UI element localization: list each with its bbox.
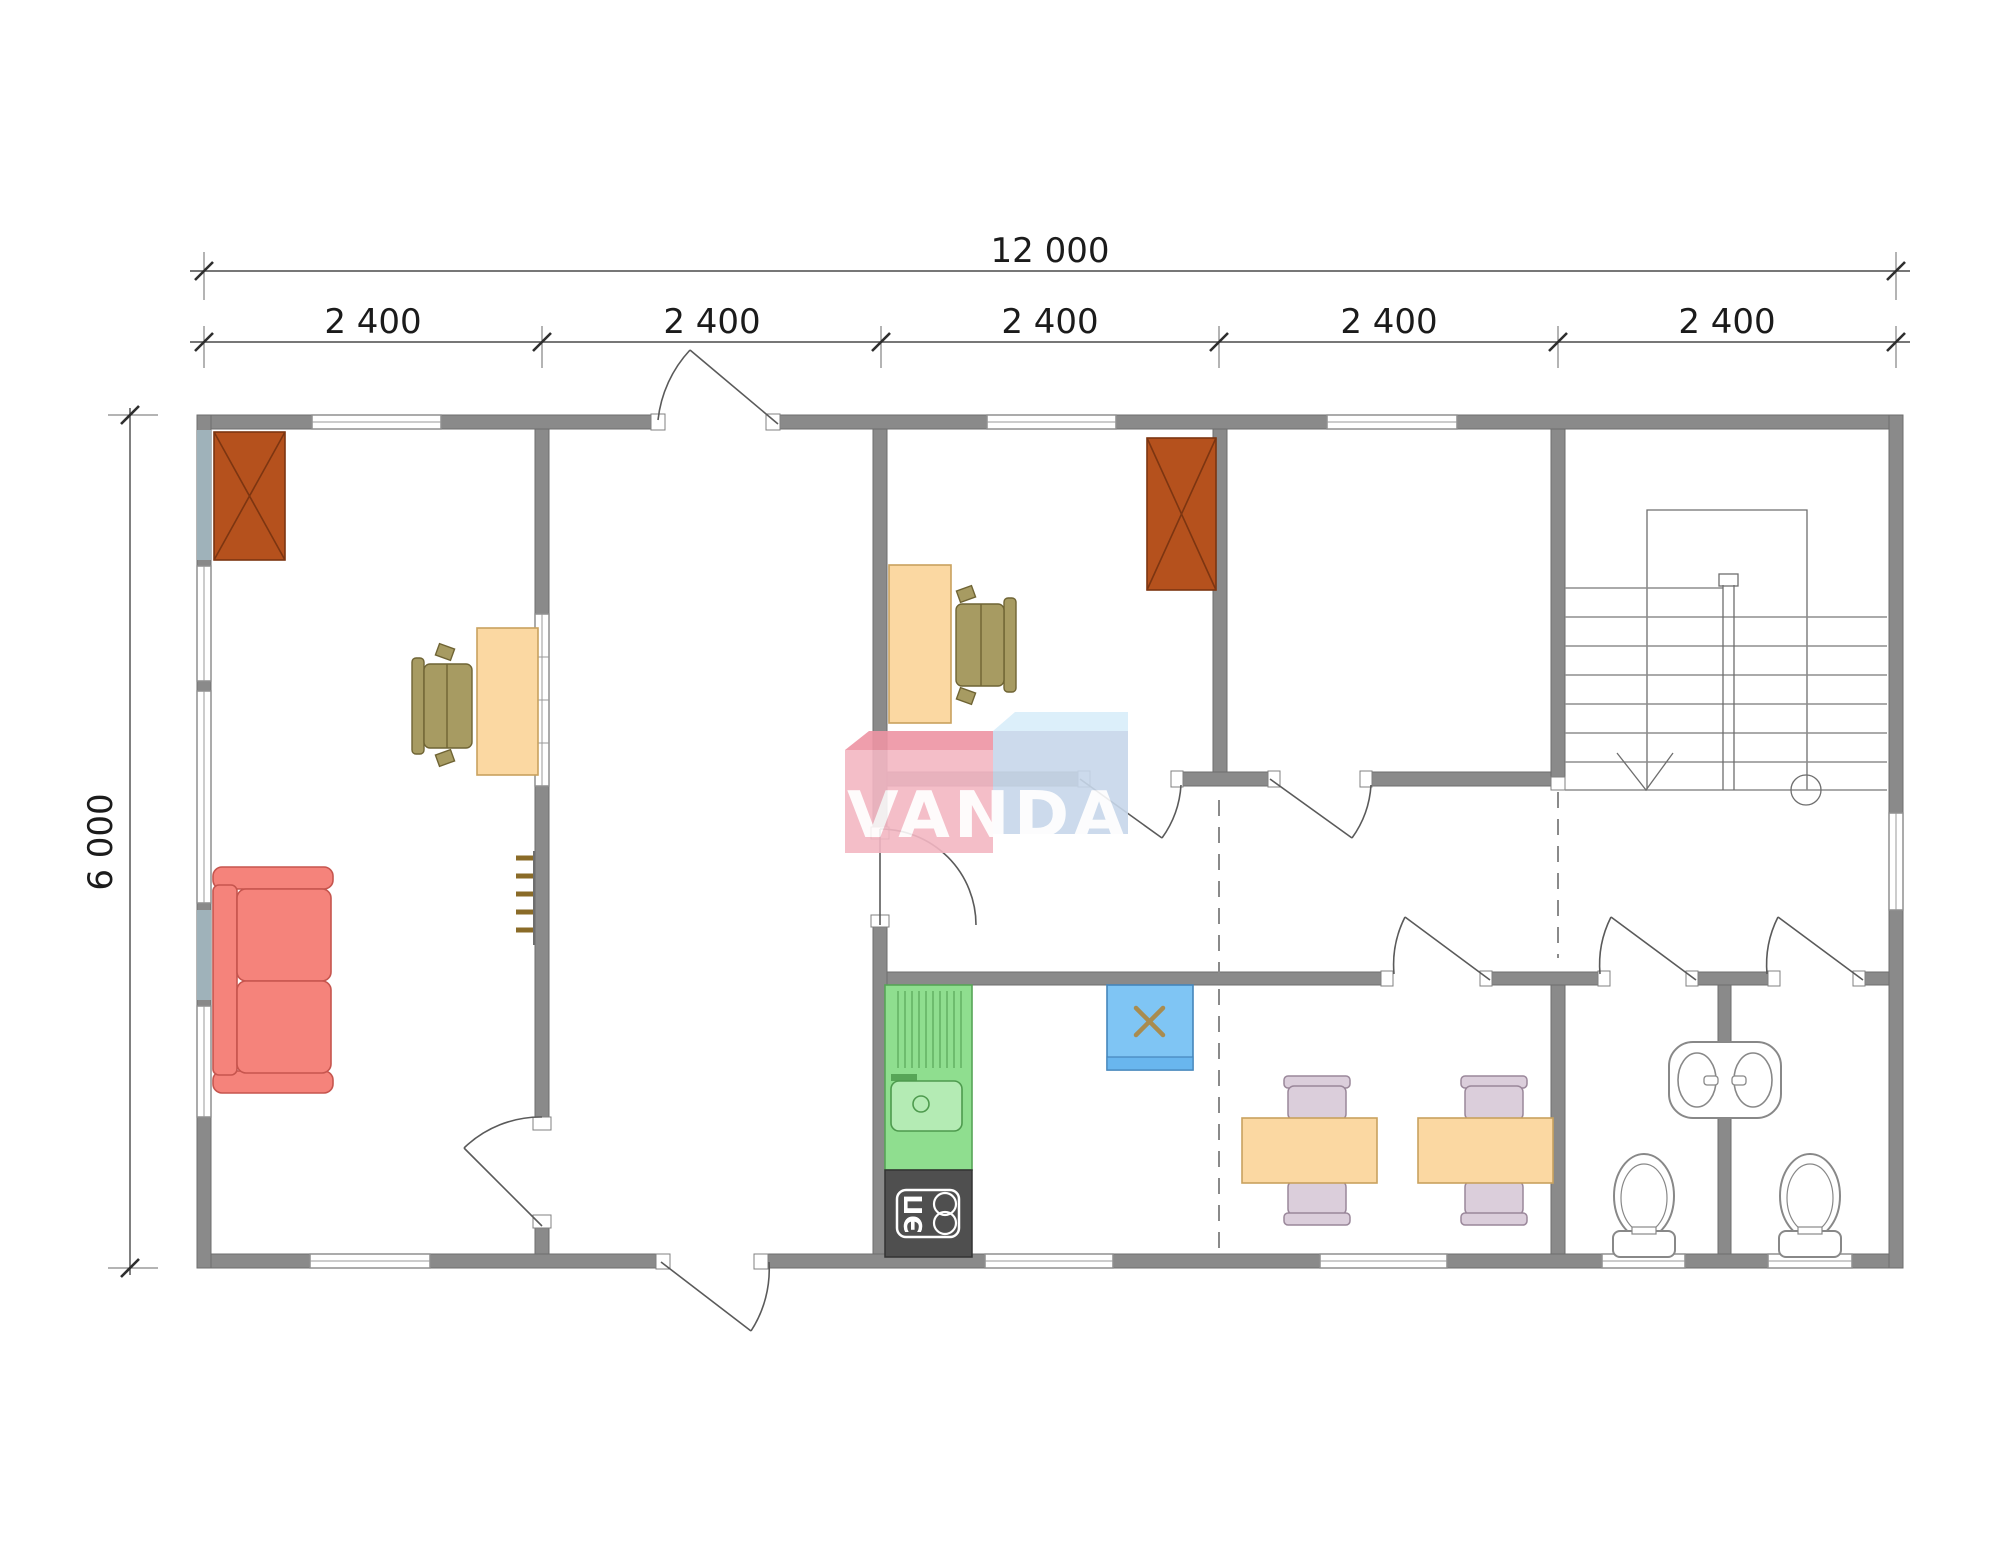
- dining-set: [1242, 1076, 1553, 1225]
- office-chair-symbol: [956, 586, 1016, 705]
- office-chair-symbol: [412, 644, 472, 767]
- door-swing-symbol: [1270, 779, 1371, 838]
- stove-label: ЭП: [899, 1194, 928, 1233]
- window-symbol: [197, 566, 211, 681]
- window-symbol: [310, 1254, 430, 1268]
- dimension-left-overall: 6 000: [81, 406, 158, 1277]
- door-swing-symbol: [658, 350, 778, 424]
- logo-blue-bevel: [993, 712, 1128, 731]
- kitchen-sink-symbol: [885, 985, 972, 1170]
- window-symbol: [985, 1254, 1113, 1268]
- door-swing-symbol: [1767, 917, 1863, 980]
- toilet-symbol: [1613, 1154, 1675, 1257]
- window-symbol: [312, 415, 441, 429]
- dimension-top-overall: 12 000: [190, 231, 1910, 300]
- floor-plan-drawing: ЭП: [0, 0, 2000, 1563]
- dimension-segment-label: 2 400: [1001, 302, 1098, 342]
- electric-stove-symbol: ЭП: [885, 1170, 972, 1257]
- window-symbol: [197, 691, 211, 903]
- dimension-segment-label: 2 400: [663, 302, 760, 342]
- fireplace-symbol: [1147, 438, 1216, 590]
- wall-accent-segment: [197, 430, 211, 560]
- fireplace-symbol: [214, 432, 285, 560]
- door-swing-symbol: [1600, 917, 1696, 980]
- dimension-segment-label: 2 400: [1678, 302, 1775, 342]
- desk-symbol: [477, 628, 538, 775]
- window-symbol: [1327, 415, 1457, 429]
- wall-accent-panel: [197, 910, 211, 1000]
- door-swing-symbol: [1394, 917, 1490, 980]
- fridge-symbol: [1107, 985, 1193, 1070]
- stair-rail: [1719, 574, 1738, 790]
- dimension-segment-label: 2 400: [324, 302, 421, 342]
- window-symbol: [197, 1006, 211, 1117]
- stairs-symbol: [1565, 510, 1887, 805]
- door-swing-symbol: [464, 1117, 542, 1226]
- dimension-total-width-label: 12 000: [991, 231, 1110, 271]
- dimension-segment-label: 2 400: [1340, 302, 1437, 342]
- sofa-symbol: [213, 867, 333, 1093]
- logo-text: VANDA: [847, 779, 1129, 853]
- window-symbol: [987, 415, 1116, 429]
- door-swing-symbol: [661, 1262, 769, 1331]
- dimension-top-segments: 2 400 2 400 2 400 2 400 2 400: [190, 302, 1910, 368]
- dimension-total-height-label: 6 000: [81, 793, 121, 890]
- window-symbol: [1889, 813, 1903, 910]
- stair-down-arrow-icon: [1617, 753, 1673, 790]
- toilet-symbol: [1779, 1154, 1841, 1257]
- towel-rail-symbol: [516, 851, 534, 945]
- logo-pink-bevel: [845, 731, 993, 750]
- dining-table-symbol: [1242, 1118, 1553, 1183]
- desk-symbol: [889, 565, 951, 723]
- window-symbol: [1320, 1254, 1447, 1268]
- vanda-watermark: VANDA: [845, 712, 1129, 853]
- floor-plan-page: ЭП: [0, 0, 2000, 1563]
- vanity-sink-symbol: [1669, 1042, 1781, 1118]
